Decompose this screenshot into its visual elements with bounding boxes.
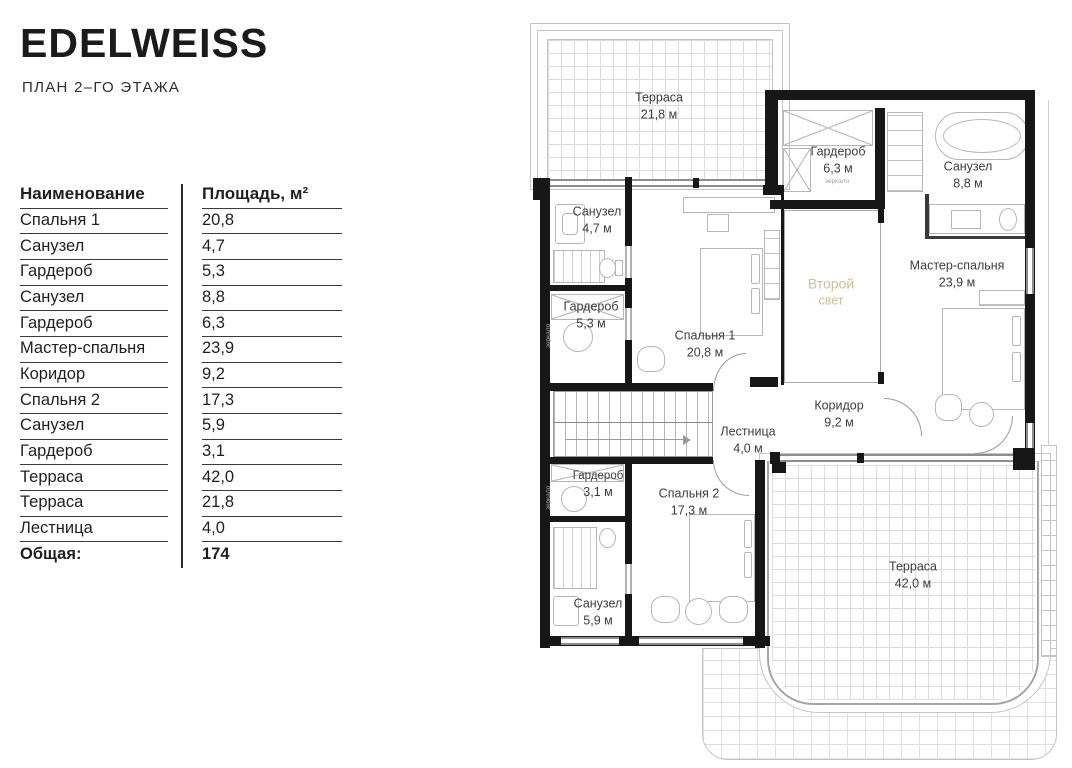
room-label-bathroom-5-9: Санузел 5,9 м — [574, 596, 623, 629]
room-label-stairs: Лестница 4,0 м — [720, 424, 775, 457]
total-label: Общая: — [20, 542, 168, 568]
wall — [540, 383, 713, 391]
room-area: 23,9 м — [910, 274, 1005, 291]
room-name: Коридор — [814, 398, 863, 415]
armchair — [651, 596, 680, 623]
room-name: Спальня 1 — [675, 328, 736, 345]
armchair — [637, 346, 665, 372]
row-name: Мастер-спальня — [20, 336, 168, 363]
room-name: Терраса — [889, 559, 937, 576]
room-name: Гардероб — [573, 469, 624, 484]
row-area: 23,9 — [202, 336, 342, 363]
room-area: 17,3 м — [659, 502, 720, 519]
floor-plan: Терраса 21,8 м Гардероб 6,3 м Санузел 8,… — [517, 8, 1072, 760]
door-master — [884, 398, 922, 436]
pillow — [744, 552, 752, 578]
row-area: 5,3 — [202, 259, 342, 286]
terrace-side-strip — [1041, 445, 1057, 657]
mirror-label: зеркало — [545, 486, 552, 510]
room-name: Второй — [808, 275, 854, 293]
staircase-direction-line — [565, 439, 685, 440]
side-table — [707, 214, 729, 232]
room-label-wardrobe-6-3: Гардероб 6,3 м — [811, 144, 866, 177]
wall — [750, 377, 778, 387]
door-gap — [625, 564, 632, 594]
wardrobe-ladder — [764, 230, 780, 300]
room-area: 4,7 м — [573, 220, 622, 237]
wall — [625, 464, 632, 636]
shower — [553, 250, 605, 283]
page-subtitle: ПЛАН 2–ГО ЭТАЖА — [22, 79, 180, 96]
round-table — [685, 598, 712, 625]
wall — [540, 178, 550, 648]
room-area: 5,9 м — [574, 612, 623, 629]
room-name: Гардероб — [811, 144, 866, 161]
wall — [755, 460, 765, 648]
toilet-bowl — [599, 258, 616, 278]
window-band — [770, 454, 1013, 462]
room-label-wardrobe-3-1: Гардероб 3,1 м — [573, 469, 624, 501]
room-area: 21,8 м — [635, 106, 683, 123]
col-header-name: Наименование — [20, 181, 168, 209]
wall — [625, 187, 632, 383]
staircase-arrow-icon — [683, 435, 691, 445]
wardrobe-unit — [783, 110, 873, 146]
room-name: Санузел — [574, 596, 623, 613]
row-name: Гардероб — [20, 439, 168, 466]
wall — [1013, 448, 1035, 470]
room-label-bedroom-1: Спальня 1 20,8 м — [675, 328, 736, 361]
row-name: Гардероб — [20, 310, 168, 337]
room-name: Гардероб — [564, 299, 619, 316]
wall — [770, 200, 885, 209]
toilet-bowl — [999, 208, 1017, 231]
room-label-terrace-top: Терраса 21,8 м — [635, 90, 683, 123]
row-name: Гардероб — [20, 259, 168, 286]
window — [639, 637, 743, 645]
window — [1026, 248, 1034, 294]
pillow — [1012, 316, 1021, 346]
wall — [550, 285, 625, 291]
mirror-label: зеркало — [825, 178, 849, 185]
row-area: 6,3 — [202, 310, 342, 337]
mirror-label: зеркало — [545, 324, 552, 348]
row-area: 8,8 — [202, 285, 342, 312]
total-value: 174 — [202, 542, 342, 568]
window-band — [550, 179, 765, 187]
wall — [878, 209, 884, 223]
room-label-bathroom-8-8: Санузел 8,8 м — [944, 159, 993, 192]
page-title: EDELWEISS — [20, 20, 268, 67]
room-label-second-light: Второй свет — [808, 275, 854, 310]
wall — [781, 194, 784, 385]
room-name: Мастер-спальня — [910, 258, 1005, 275]
roof-edge-line — [1048, 100, 1049, 446]
shower — [553, 527, 597, 589]
row-name: Санузел — [20, 233, 168, 260]
row-area: 42,0 — [202, 464, 342, 491]
col-header-area: Площадь, м² — [202, 181, 342, 209]
pillow — [1012, 352, 1021, 382]
window — [561, 637, 619, 645]
row-name: Коридор — [20, 362, 168, 389]
row-area: 4,0 — [202, 516, 342, 543]
room-area: свет — [808, 293, 854, 310]
staircase-divider — [553, 422, 713, 423]
room-label-bedroom-2: Спальня 2 17,3 м — [659, 486, 720, 519]
room-label-terrace-bottom: Терраса 42,0 м — [889, 559, 937, 592]
vanity-sink — [951, 210, 981, 229]
floor-plan-page: EDELWEISS ПЛАН 2–ГО ЭТАЖА Наименование П… — [0, 0, 1072, 768]
door-gap — [625, 308, 632, 340]
bathtub-basin — [943, 119, 1021, 153]
room-name: Терраса — [635, 90, 683, 107]
room-area: 9,2 м — [814, 414, 863, 431]
table-column-divider — [181, 184, 183, 568]
row-name: Терраса — [20, 490, 168, 517]
room-label-wardrobe-5-3: Гардероб 5,3 м — [564, 299, 619, 332]
wall — [550, 516, 625, 522]
row-area: 21,8 — [202, 490, 342, 517]
wall — [878, 372, 884, 384]
pillow — [751, 288, 760, 314]
room-name: Санузел — [944, 159, 993, 176]
shelving-unit — [887, 112, 923, 192]
room-name: Спальня 2 — [659, 486, 720, 503]
row-area: 3,1 — [202, 439, 342, 466]
area-table: Наименование Площадь, м² Спальня 120,8 С… — [20, 181, 342, 568]
wall-thin — [925, 194, 929, 239]
row-name: Спальня 2 — [20, 387, 168, 414]
wall — [765, 90, 778, 194]
room-area: 42,0 м — [889, 575, 937, 592]
room-area: 20,8 м — [675, 344, 736, 361]
room-label-bathroom-4-7: Санузел 4,7 м — [573, 204, 622, 237]
toilet-tank — [615, 260, 623, 276]
pillow — [744, 520, 752, 548]
row-name: Спальня 1 — [20, 208, 168, 235]
row-name: Санузел — [20, 285, 168, 312]
door-terrace — [975, 416, 1013, 454]
wall — [857, 453, 864, 463]
room-area: 6,3 м — [811, 160, 866, 177]
room-name: Лестница — [720, 424, 775, 441]
armchair — [719, 596, 748, 623]
row-area: 9,2 — [202, 362, 342, 389]
wardrobe-unit — [783, 148, 811, 192]
armchair — [935, 394, 962, 421]
row-area: 4,7 — [202, 233, 342, 260]
room-area: 8,8 м — [944, 175, 993, 192]
room-label-master: Мастер-спальня 23,9 м — [910, 258, 1005, 291]
wall — [693, 178, 699, 188]
row-area: 20,8 — [202, 208, 342, 235]
wall — [875, 108, 885, 200]
row-name: Лестница — [20, 516, 168, 543]
wardrobe-ladder — [979, 290, 1025, 306]
staircase — [553, 391, 713, 457]
row-name: Санузел — [20, 413, 168, 440]
pillow — [751, 254, 760, 284]
row-area: 5,9 — [202, 413, 342, 440]
room-area: 4,0 м — [720, 440, 775, 457]
wall-thin — [927, 236, 1025, 239]
wall — [765, 90, 1035, 100]
counter — [683, 197, 775, 213]
toilet-bowl — [599, 528, 616, 548]
row-area: 17,3 — [202, 387, 342, 414]
door-gap — [625, 246, 632, 278]
room-area: 5,3 м — [564, 315, 619, 332]
wall — [540, 457, 713, 464]
room-label-corridor: Коридор 9,2 м — [814, 398, 863, 431]
row-name: Терраса — [20, 464, 168, 491]
room-name: Санузел — [573, 204, 622, 221]
room-area: 3,1 м — [573, 484, 624, 501]
